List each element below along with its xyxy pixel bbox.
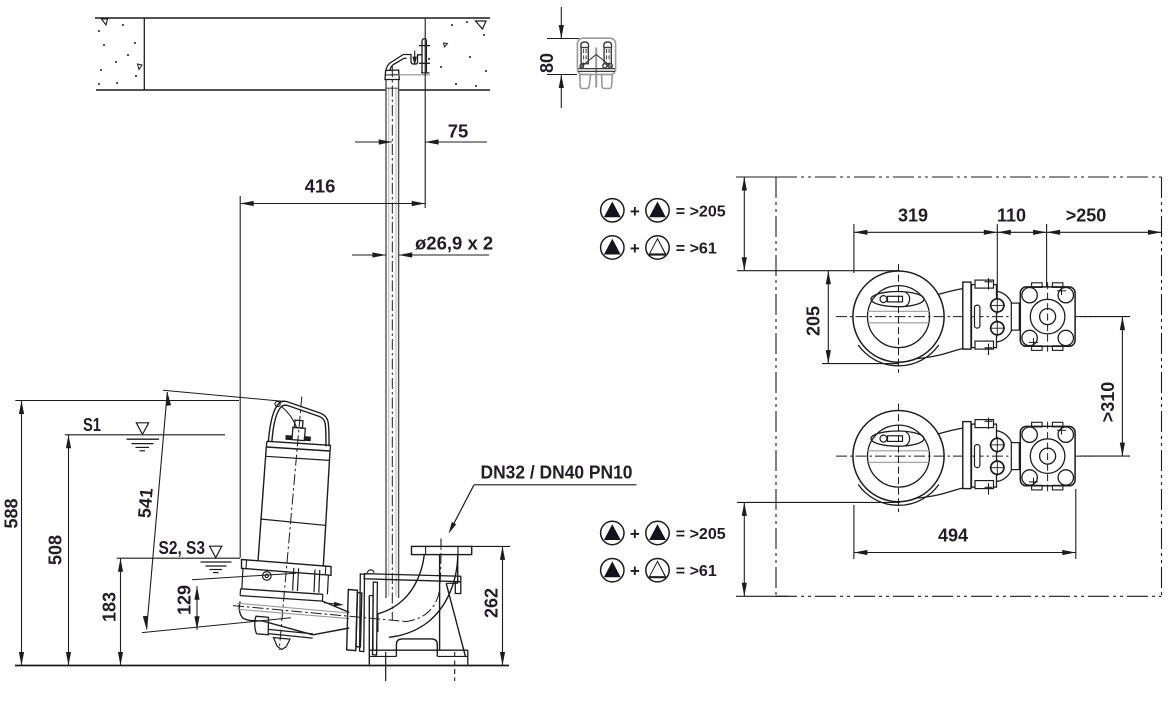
svg-text:110: 110 xyxy=(997,205,1026,225)
svg-text:+: + xyxy=(630,525,640,544)
svg-text:S2, S3: S2, S3 xyxy=(159,538,206,558)
svg-text:183: 183 xyxy=(100,592,120,622)
svg-text:DN32 / DN40 PN10: DN32 / DN40 PN10 xyxy=(481,462,633,483)
svg-text:+: + xyxy=(630,202,640,221)
svg-text:S1: S1 xyxy=(83,415,101,435)
svg-text:= >205: = >205 xyxy=(676,203,726,220)
svg-text:+: + xyxy=(630,239,640,258)
svg-text:>250: >250 xyxy=(1066,205,1107,225)
svg-text:205: 205 xyxy=(804,306,824,336)
svg-text:+: + xyxy=(630,562,640,581)
svg-text:494: 494 xyxy=(938,526,968,546)
svg-text:>310: >310 xyxy=(1098,382,1118,423)
svg-text:75: 75 xyxy=(448,121,469,142)
svg-text:416: 416 xyxy=(305,176,336,197)
svg-text:262: 262 xyxy=(482,588,502,618)
svg-text:541: 541 xyxy=(134,487,157,519)
svg-text:= >205: = >205 xyxy=(676,526,726,543)
svg-text:588: 588 xyxy=(2,498,22,528)
svg-text:= >61: = >61 xyxy=(676,241,717,258)
svg-text:80: 80 xyxy=(537,53,557,73)
svg-text:319: 319 xyxy=(898,205,928,225)
svg-text:129: 129 xyxy=(175,585,195,615)
svg-text:508: 508 xyxy=(46,535,66,565)
svg-text:ø26,9 x 2: ø26,9 x 2 xyxy=(415,233,493,254)
svg-text:= >61: = >61 xyxy=(676,563,717,580)
